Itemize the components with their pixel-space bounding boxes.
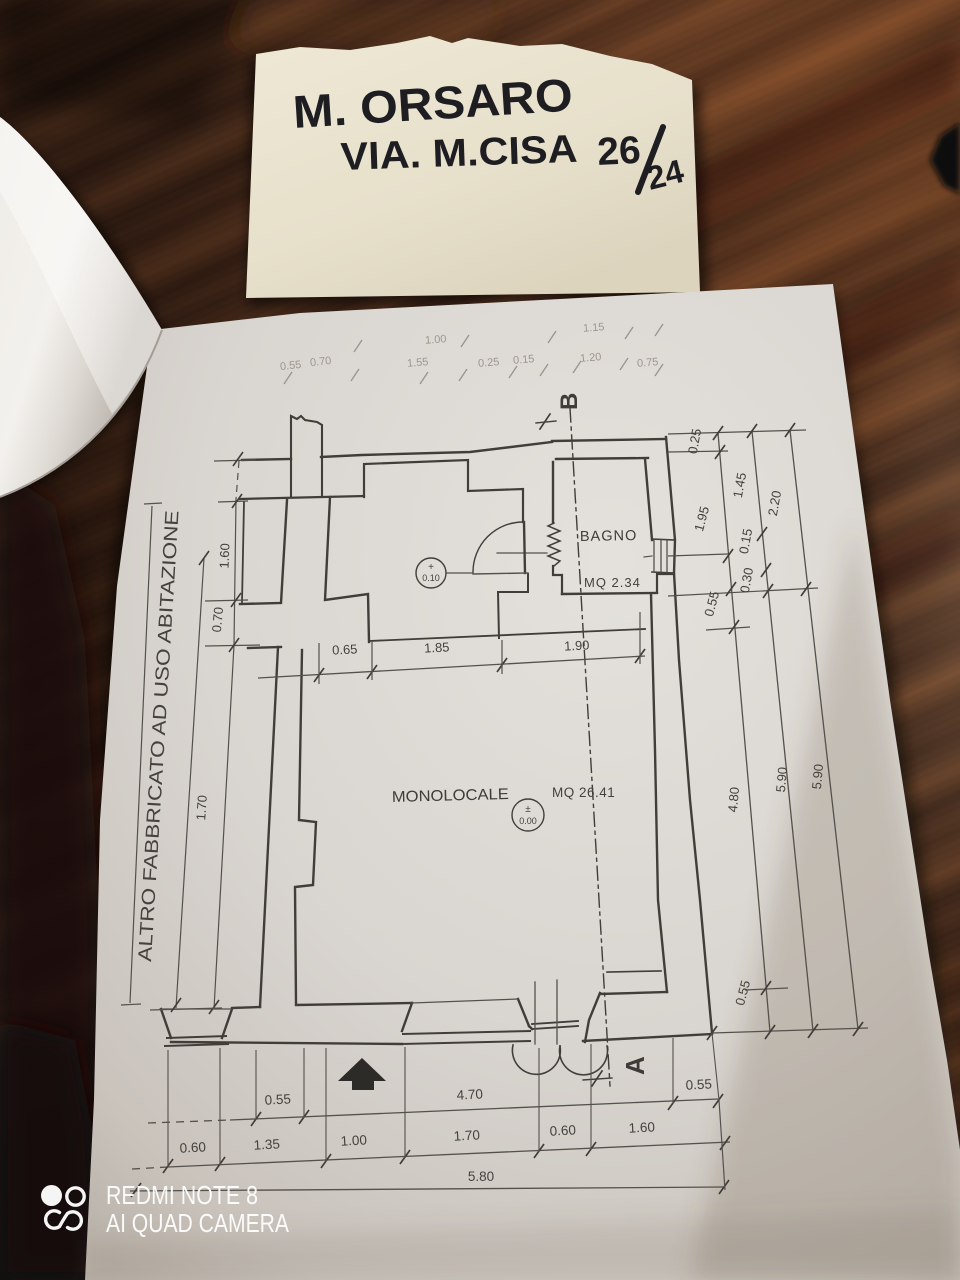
svg-text:0.55: 0.55 bbox=[685, 1076, 712, 1092]
svg-text:0.25: 0.25 bbox=[478, 356, 500, 370]
svg-text:MQ 26.41: MQ 26.41 bbox=[552, 785, 615, 800]
svg-text:5.90: 5.90 bbox=[809, 763, 826, 790]
svg-text:1.20: 1.20 bbox=[580, 351, 602, 365]
svg-text:0.15: 0.15 bbox=[513, 353, 535, 367]
svg-text:0.55: 0.55 bbox=[279, 359, 302, 373]
svg-text:0.55: 0.55 bbox=[264, 1091, 291, 1107]
svg-text:1.00: 1.00 bbox=[340, 1132, 367, 1148]
svg-text:MQ 2.34: MQ 2.34 bbox=[584, 575, 641, 590]
svg-text:4.80: 4.80 bbox=[725, 786, 742, 813]
svg-text:B: B bbox=[556, 393, 583, 410]
svg-text:1.85: 1.85 bbox=[424, 639, 450, 655]
svg-text:VIA. M.CISA: VIA. M.CISA bbox=[340, 128, 578, 179]
svg-text:1.55: 1.55 bbox=[407, 356, 429, 370]
svg-text:BAGNO: BAGNO bbox=[580, 528, 638, 545]
svg-text:1.60: 1.60 bbox=[217, 543, 233, 569]
svg-text:0.70: 0.70 bbox=[209, 606, 226, 633]
svg-text:0.75: 0.75 bbox=[637, 356, 659, 370]
svg-text:1.60: 1.60 bbox=[628, 1119, 655, 1135]
svg-text:0.60: 0.60 bbox=[549, 1122, 576, 1138]
svg-text:1.00: 1.00 bbox=[425, 333, 447, 346]
svg-text:REDMI NOTE 8: REDMI NOTE 8 bbox=[106, 1180, 258, 1210]
svg-text:4.70: 4.70 bbox=[456, 1086, 483, 1102]
svg-text:1.90: 1.90 bbox=[564, 637, 590, 653]
svg-text:1.70: 1.70 bbox=[193, 795, 210, 821]
svg-text:1.35: 1.35 bbox=[253, 1136, 280, 1152]
svg-text:+: + bbox=[428, 562, 434, 573]
svg-text:AI QUAD CAMERA: AI QUAD CAMERA bbox=[106, 1208, 290, 1238]
svg-text:A: A bbox=[620, 1056, 650, 1075]
svg-text:5.80: 5.80 bbox=[468, 1169, 494, 1184]
svg-text:0.60: 0.60 bbox=[179, 1139, 206, 1155]
svg-text:1.15: 1.15 bbox=[583, 321, 605, 334]
svg-text:±: ± bbox=[525, 804, 531, 815]
svg-text:0.70: 0.70 bbox=[309, 355, 332, 369]
svg-text:0.00: 0.00 bbox=[519, 816, 537, 826]
svg-text:26: 26 bbox=[596, 129, 642, 174]
svg-text:0.10: 0.10 bbox=[422, 573, 440, 583]
svg-text:MONOLOCALE: MONOLOCALE bbox=[392, 786, 509, 806]
svg-text:0.65: 0.65 bbox=[332, 641, 358, 657]
svg-text:1.70: 1.70 bbox=[453, 1127, 480, 1143]
svg-text:5.90: 5.90 bbox=[773, 766, 790, 793]
